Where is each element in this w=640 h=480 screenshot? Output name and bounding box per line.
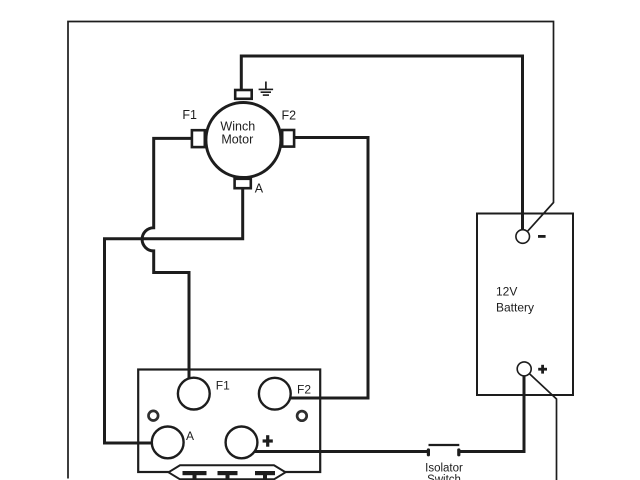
svg-text:Motor: Motor [221, 133, 253, 147]
svg-text:A: A [255, 181, 264, 195]
svg-text:Isolator: Isolator [425, 463, 463, 475]
svg-text:F2: F2 [282, 109, 297, 123]
svg-text:Battery: Battery [496, 301, 534, 315]
svg-text:Switch: Switch [427, 474, 461, 480]
svg-text:F2: F2 [297, 383, 311, 397]
svg-text:F1: F1 [216, 379, 230, 393]
svg-text:F1: F1 [182, 108, 197, 122]
svg-text:12V: 12V [496, 285, 517, 299]
svg-text:A: A [186, 429, 194, 443]
svg-text:Winch: Winch [220, 120, 255, 134]
